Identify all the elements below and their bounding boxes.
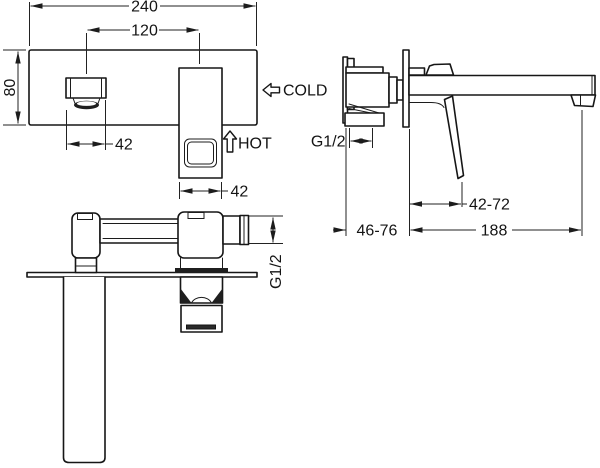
handle-top [175, 268, 228, 332]
aerator-side [571, 95, 596, 107]
wall-plate-front [29, 50, 257, 125]
connecting-bar-top [100, 219, 180, 243]
cartridge-cover [426, 64, 454, 75]
cold-arrow-icon [263, 84, 280, 97]
hot-label: HOT [238, 136, 272, 153]
wall-plate-side [403, 50, 409, 127]
dim-80-label: 80 [2, 79, 19, 97]
dim-120-label: 120 [131, 23, 158, 40]
handle-grip-slot [187, 325, 216, 329]
handle-front [179, 68, 222, 178]
dim-240-label: 240 [131, 0, 158, 16]
dim-42-spout-label: 42 [115, 137, 133, 154]
hot-inlet-indicator: HOT [224, 131, 273, 153]
dimension-handle-projection: 42-72 [410, 182, 510, 214]
side-view: G1/2 42-72 46-76 188 [311, 50, 596, 240]
lever-handle-side [409, 96, 464, 179]
hot-arrow-icon [224, 131, 237, 152]
dim-g12-top-label: G1/2 [268, 254, 285, 289]
dimension-spout-reach: 188 [411, 223, 582, 240]
spout-body-top [72, 213, 100, 273]
dimension-outlet-thread: G1/2 [249, 216, 285, 289]
cold-label: COLD [283, 83, 327, 100]
spout-side [409, 64, 596, 107]
dimension-handle-width: 42 [180, 182, 249, 201]
dim-46-76-label: 46-76 [357, 223, 398, 240]
dim-g12-side-label: G1/2 [311, 134, 346, 151]
handle-collar [175, 268, 228, 273]
drawing-svg: 240 120 80 42 42 [0, 0, 600, 468]
dim-42-handle-label: 42 [231, 184, 249, 201]
front-view: 240 120 80 42 42 [2, 0, 327, 201]
dim-42-72-label: 42-72 [469, 197, 510, 214]
top-view: G1/2 [27, 212, 285, 463]
inlet-connection [345, 113, 384, 126]
valve-body-top [178, 212, 249, 268]
dimension-plate-height: 80 [2, 50, 26, 125]
cold-inlet-indicator: COLD [263, 83, 327, 100]
spout-top [64, 277, 106, 463]
concealed-valve-body [343, 57, 403, 126]
dim-188-label: 188 [481, 223, 508, 240]
side-outlet-stub [223, 216, 240, 244]
dimension-inlet-thread: G1/2 [311, 128, 373, 151]
faucet-technical-drawing: 240 120 80 42 42 [0, 0, 600, 468]
